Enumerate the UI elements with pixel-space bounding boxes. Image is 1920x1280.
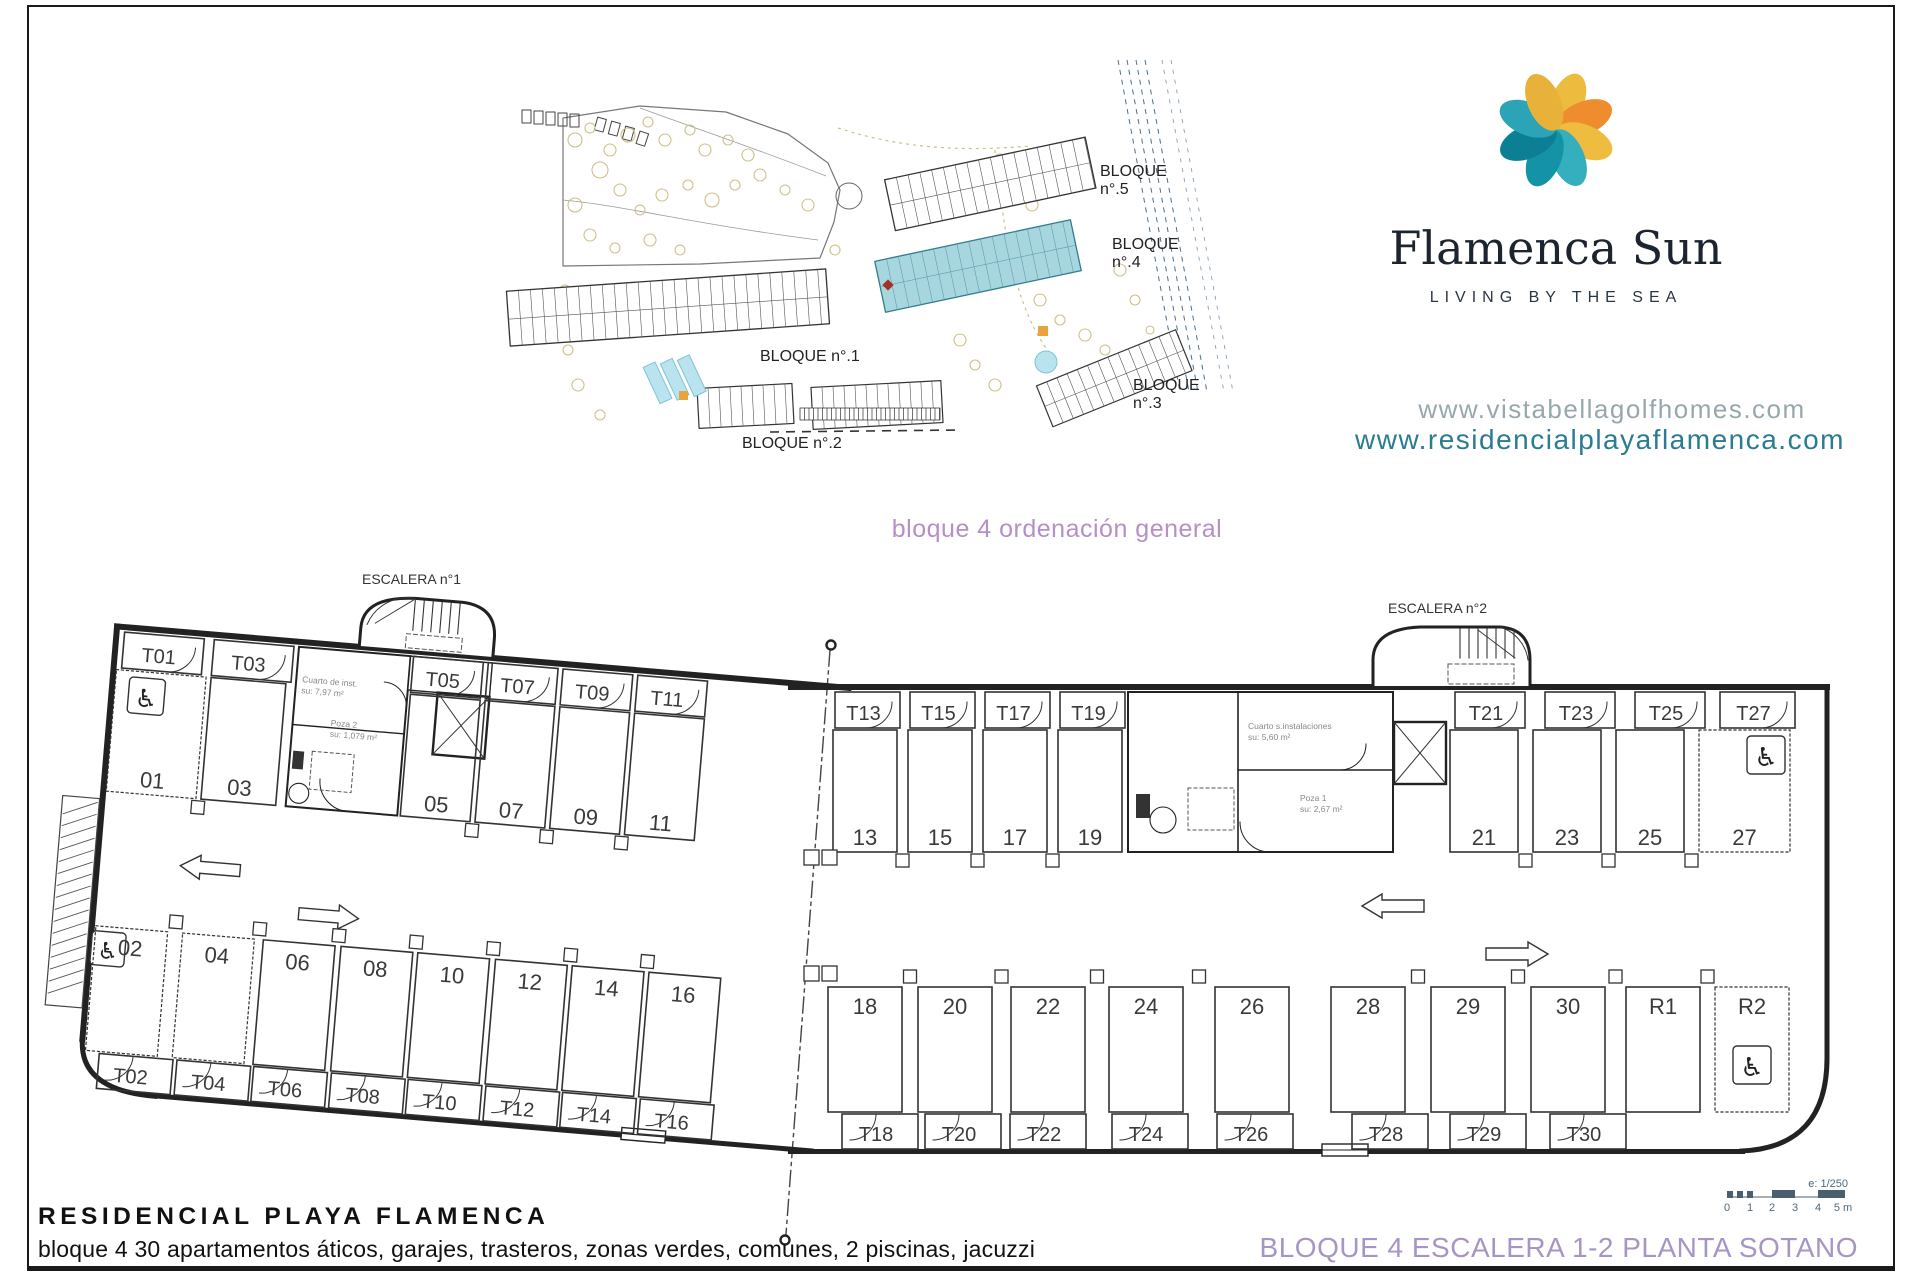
pillar [904,970,917,983]
pillar [804,966,819,981]
parking-stall-label: 18 [853,994,877,1019]
storage-room-top: T21 [1455,692,1525,728]
pillar [1193,970,1206,983]
storage-room-bottom: T10 [405,1079,482,1120]
scale-tick: 0 [1724,1202,1730,1214]
storage-room-top-label: T05 [425,669,461,694]
label-bloque-2: BLOQUE n°.2 [742,435,842,452]
elevator-2 [1394,722,1446,784]
storage-room-bottom-label: T24 [1129,1124,1163,1146]
storage-room-top: T27 [1720,692,1795,728]
svg-text:n°.5: n°.5 [1100,181,1129,198]
storage-room-bottom-label: T08 [344,1084,380,1109]
parking-stall-label: 15 [928,825,952,850]
direction-arrow-left [1362,894,1424,918]
pillar [995,970,1008,983]
storage-room-top: T19 [1060,692,1125,728]
storage-room-top-label: T03 [230,652,266,677]
storage-room-bottom: T24 [1112,1114,1188,1149]
parking-stall: 04 [172,933,254,1064]
parking-stall: 17 [983,730,1047,852]
parking-stall-label: 14 [593,975,619,1002]
storage-room-bottom: T06 [251,1066,328,1107]
parking-stall-label: 10 [439,962,465,989]
scale-tick: 1 [1747,1202,1753,1214]
sheet-canvas: BLOQUE n°.5 BLOQUE n°.4 BLOQUE n°.1 BLOQ… [0,0,1920,1280]
pillar [253,922,267,936]
parking-stall-label: 04 [204,942,230,969]
pillar [1512,970,1525,983]
scale-bar: e: 1/250 012345 m [1724,1178,1852,1214]
handicap-icon-stall-r2: ♿ [1733,1046,1771,1084]
floor-plan: ESCALERA n°1 ESCALERA n°2 [38,570,1830,1244]
pillar [169,915,183,929]
parking-stall: 15 [908,730,972,852]
svg-text:♿: ♿ [1754,743,1777,773]
parking-stall-label: R1 [1649,994,1677,1019]
pillar [1602,854,1615,867]
storage-room-top: T15 [910,692,975,728]
pillar [1046,854,1059,867]
storage-room-top-label: T21 [1469,703,1503,725]
storage-room-top-label: T15 [921,703,955,725]
parking-stall: 10 [407,953,489,1084]
parking-stall: 29 [1431,987,1505,1112]
url-residencial: www.residencialplayaflamenca.com [1354,424,1845,455]
storage-room-top-label: T25 [1649,703,1683,725]
handicap-icon-stall-01: ♿ [127,677,166,716]
pillar [1412,970,1425,983]
parking-stall: 26 [1215,987,1289,1112]
storage-room-bottom: T20 [925,1114,1001,1149]
storage-room-top-label: T27 [1736,703,1770,725]
pillar [332,929,346,943]
parking-stall: 19 [1058,730,1122,852]
scale-tick: 5 m [1834,1202,1852,1214]
wall-top-right-wing [788,684,1830,690]
brand-logo: Flamenca Sun LIVING BY THE SEA www.vista… [1354,68,1845,455]
orange-marker-1 [1038,326,1048,336]
storage-room-bottom: T29 [1450,1114,1526,1149]
parking-stall-label: 06 [284,949,310,976]
pillar [465,823,479,837]
project-title: RESIDENCIAL PLAYA FLAMENCA [38,1203,549,1230]
scale-tick-labels: 012345 m [1724,1202,1852,1214]
note-cuarto-instalaciones: Cuarto s.instalaciones [1248,721,1332,731]
svg-text:su: 2,67 m²: su: 2,67 m² [1300,804,1343,814]
parking-stall: 25 [1616,730,1684,852]
storage-room-top: T07 [485,663,558,705]
parking-stall: 24 [1109,987,1183,1112]
label-bloque-3: BLOQUE [1133,377,1200,394]
parking-strip [770,408,960,432]
parking-stall: 23 [1533,730,1601,852]
storage-room-top-label: T01 [141,645,177,670]
pillar [539,830,553,844]
wing-right: Cuarto s.instalaciones su: 5,60 m² Poza … [788,627,1830,1156]
building-bloque-2 [697,381,943,430]
parking-stall-label: 05 [423,791,449,818]
storage-room-bottom-label: T18 [859,1124,893,1146]
scale-tick: 2 [1769,1202,1775,1214]
parking-stall-label: 13 [853,825,877,850]
parking-stall: 20 [918,987,992,1112]
parking-stall: R1 [1626,987,1700,1112]
pillar [191,800,205,814]
pillar [614,836,628,850]
storage-room-top: T23 [1545,692,1615,728]
svg-text:su: 5,60 m²: su: 5,60 m² [1248,732,1291,742]
storage-room-bottom: T26 [1217,1114,1293,1149]
svg-text:♿: ♿ [1740,1053,1763,1083]
pillar [1519,854,1532,867]
parking-stall-label: 19 [1078,825,1102,850]
parking-stall: 09 [550,707,630,834]
parking-stall-label: 23 [1555,825,1579,850]
direction-arrow-left-2 [179,854,241,883]
wing-left: Cuarto de inst. su: 7,97 m² Poza 2 su: 1… [38,570,857,1155]
parking-stall-label: 12 [517,968,543,995]
pillar [1701,970,1714,983]
parking-stall: 16 [639,972,721,1103]
storage-room-bottom-label: T26 [1234,1124,1268,1146]
storage-room-bottom: T22 [1010,1114,1086,1149]
label-escalera-2: ESCALERA n°2 [1388,600,1487,616]
parking-stall: 30 [1531,987,1605,1112]
pillar [1685,854,1698,867]
page-border-bottom [28,1266,1894,1271]
parking-stall-label: 17 [1003,825,1027,850]
storage-room-bottom: T30 [1550,1114,1626,1149]
storage-room-bottom-label: T30 [1567,1124,1601,1146]
storage-room-top: T01 [122,632,205,675]
parking-stall-label: 09 [573,803,599,830]
footer: RESIDENCIAL PLAYA FLAMENCA bloque 4 30 a… [38,1178,1858,1263]
pillar [804,850,819,865]
parking-stall-label: 08 [362,955,388,982]
storage-room-bottom: T08 [329,1073,406,1114]
pillar [971,854,984,867]
ramp-hatch [45,796,99,1008]
direction-arrow-right [1486,942,1548,966]
roundabout [836,183,862,209]
storage-room-bottom: T04 [174,1060,251,1101]
parking-stall: 18 [828,987,902,1112]
pillar [564,948,578,962]
storage-room-bottom: T18 [842,1114,918,1149]
storage-room-bottom-label: T14 [576,1104,612,1129]
pillar [409,935,423,949]
parking-stall-label: 28 [1356,994,1380,1019]
storage-room-bottom-label: T02 [112,1065,148,1090]
scale-tick: 4 [1815,1202,1821,1214]
storage-room-bottom-label: T06 [267,1078,303,1103]
caption-ordenacion-general: bloque 4 ordenación general [892,515,1222,543]
storage-room-top: T13 [835,692,900,728]
label-bloque-1: BLOQUE n°.1 [760,348,860,365]
pillar [640,955,654,969]
storage-room-top: T09 [560,669,633,711]
storage-room-bottom: T02 [96,1053,173,1094]
storage-room-bottom-label: T28 [1369,1124,1403,1146]
storage-room-bottom-label: T20 [942,1124,976,1146]
storage-room-top-label: T09 [574,681,610,706]
building-bloque-1 [506,269,829,346]
parking-stall: 06 [253,940,335,1071]
parking-stall-label: 22 [1036,994,1060,1019]
storage-room-bottom-label: T16 [653,1110,689,1135]
scale-tick: 3 [1792,1202,1798,1214]
url-vistabella: www.vistabellagolfhomes.com [1417,394,1805,424]
parking-stall: 03 [201,678,286,806]
sheet-title: BLOQUE 4 ESCALERA 1-2 PLANTA SOTANO [1260,1232,1858,1263]
storage-room-top-label: T13 [846,703,880,725]
label-bloque-5: BLOQUE [1100,163,1167,180]
pillar [822,966,837,981]
parking-stall: 28 [1331,987,1405,1112]
building-bloque-4-highlighted [875,220,1081,312]
parking-stall: 11 [624,713,704,840]
storage-room-bottom-label: T04 [190,1071,226,1096]
pillar [1609,970,1622,983]
storage-room-top-label: T17 [996,703,1030,725]
parking-stall-label: 03 [226,774,252,801]
storage-room-bottom-label: T29 [1467,1124,1501,1146]
site-plan-map: BLOQUE n°.5 BLOQUE n°.4 BLOQUE n°.1 BLOQ… [506,60,1233,452]
section-marker-top [827,641,836,650]
parking-stall-label: 30 [1556,994,1580,1019]
building-bloque-5 [885,137,1096,230]
storage-room-bottom: T12 [483,1086,560,1127]
orange-marker-2 [679,391,688,400]
storage-room-bottom-label: T10 [421,1091,457,1116]
parking-stall: 14 [562,966,644,1097]
plan-sheet: BLOQUE n°.5 BLOQUE n°.4 BLOQUE n°.1 BLOQ… [0,0,1920,1280]
parking-stall-label: 27 [1732,825,1756,850]
storage-room-top: T17 [985,692,1050,728]
parking-stall: 08 [331,946,413,1077]
storage-room-top: T03 [211,640,294,683]
parking-stall-label: 07 [498,797,524,824]
door-threshold-right [1322,1144,1368,1156]
svg-text:♿: ♿ [96,938,119,966]
stair-core-2 [1373,627,1530,686]
storage-room-top-label: T11 [650,687,685,712]
parking-stall-label: 01 [139,767,165,794]
parking-stall: 12 [485,959,567,1090]
note-poza-1: Poza 1 [1300,793,1327,803]
project-subtitle: bloque 4 30 apartamentos áticos, garajes… [38,1236,1035,1262]
storage-room-bottom-label: T12 [499,1097,535,1122]
parking-stall-label: 26 [1240,994,1264,1019]
svg-text:n°.4: n°.4 [1112,254,1141,271]
parking-stall: 22 [1011,987,1085,1112]
parking-stall-label: 16 [670,981,696,1008]
svg-text:♿: ♿ [134,683,159,714]
scale-label: e: 1/250 [1808,1178,1848,1190]
flower-logo-icon [1494,68,1618,192]
brand-tagline: LIVING BY THE SEA [1430,289,1683,306]
storage-room-top: T11 [635,675,708,717]
parking-stall-label: 11 [648,810,673,837]
parking-stall: 13 [833,730,897,852]
wall-left-end [79,623,120,1042]
parking-stall-label: 20 [943,994,967,1019]
storage-room-bottom-label: T22 [1027,1124,1061,1146]
parking-stall-label: 02 [117,935,143,962]
brand-name: Flamenca Sun [1389,221,1722,275]
label-bloque-4: BLOQUE [1112,236,1179,253]
parking-stall-label: R2 [1738,994,1766,1019]
label-escalera-1: ESCALERA n°1 [362,571,461,587]
direction-arrow-right-2 [298,902,360,931]
parking-stall-label: 25 [1638,825,1662,850]
svg-text:n°.3: n°.3 [1133,395,1162,412]
pillar [486,942,500,956]
parking-stall: 21 [1450,730,1518,852]
pillar [822,850,837,865]
pillar [896,854,909,867]
storage-room-top: T25 [1635,692,1705,728]
handicap-icon-stall-27: ♿ [1747,736,1785,774]
parking-stall-label: 21 [1472,825,1496,850]
stair-core-1 [359,594,497,657]
parking-stall-label: 29 [1456,994,1480,1019]
storage-room-top-label: T19 [1071,703,1105,725]
tech-rooms-right [1128,692,1393,852]
storage-room-top-label: T07 [499,675,535,700]
parking-stall-label: 24 [1134,994,1158,1019]
pillar [1091,970,1104,983]
storage-room-top-label: T23 [1559,703,1593,725]
